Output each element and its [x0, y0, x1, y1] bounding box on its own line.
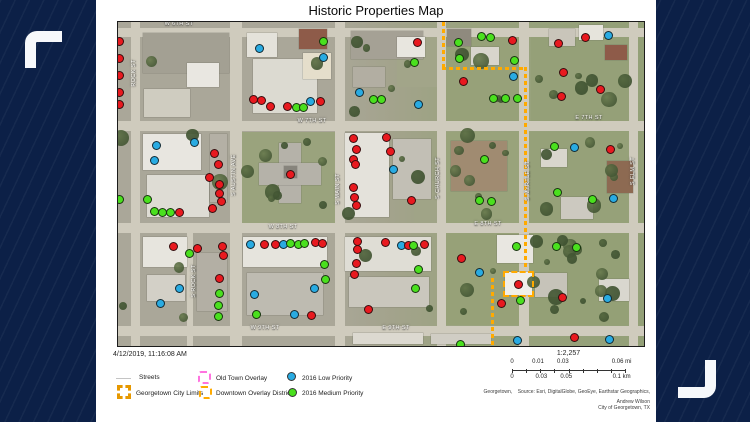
legend-label-city-limits: Georgetown City Limits: [136, 390, 203, 397]
map-timestamp: 4/12/2019, 11:16:08 AM: [113, 351, 187, 358]
property-dot-green: [300, 239, 309, 248]
street-label: S ROCK ST: [191, 261, 197, 301]
property-dot-green: [214, 312, 223, 321]
property-dot-green: [572, 243, 581, 252]
property-dot-blue: [152, 141, 161, 150]
property-dot-blue: [509, 72, 518, 81]
property-dot-green: [411, 284, 420, 293]
city-limits-symbol-icon: [117, 385, 131, 399]
scalebar-tick: [512, 369, 513, 373]
scalebar-tick: [569, 369, 570, 373]
street-label: ROCK ST: [131, 53, 137, 93]
tree-canopy: [586, 74, 598, 86]
property-dot-red: [350, 270, 359, 279]
property-dot-green: [409, 241, 418, 250]
property-dot-red: [497, 299, 506, 308]
property-dot-blue: [156, 299, 165, 308]
property-dot-red: [353, 245, 362, 254]
tree-canopy: [541, 149, 552, 160]
property-dot-green: [319, 37, 328, 46]
scalebar-tick: [526, 369, 527, 373]
property-dot-red: [208, 204, 217, 213]
tree-canopy: [460, 308, 467, 315]
property-dot-green: [510, 56, 519, 65]
street-label: E 7TH ST: [569, 115, 609, 121]
scalebar-tick-label: 0: [510, 374, 513, 380]
tree-canopy: [174, 262, 185, 273]
property-dot-blue: [250, 290, 259, 299]
property-dot-green: [489, 94, 498, 103]
tree-canopy: [450, 165, 461, 176]
corner-bracket-bottom-right-icon: [678, 360, 716, 398]
scalebar-tick-label: 0.03: [536, 374, 548, 380]
property-dot-green: [487, 197, 496, 206]
tree-canopy: [318, 157, 327, 166]
property-dot-red: [349, 183, 358, 192]
property-dot-green: [321, 275, 330, 284]
scalebar-tick-label: 0.01: [532, 359, 544, 365]
downtown-overlay-symbol-icon: [199, 386, 212, 399]
property-dot-red: [210, 149, 219, 158]
building-roof: [197, 253, 227, 311]
property-dot-green: [477, 32, 486, 41]
street-label: E 8TH ST: [468, 221, 508, 227]
scalebar-tick: [540, 369, 541, 373]
legend-label-downtown: Downtown Overlay District: [216, 390, 292, 397]
tree-canopy: [351, 36, 362, 47]
property-dot-blue: [414, 100, 423, 109]
property-dot-red: [117, 71, 124, 80]
tree-canopy: [388, 85, 395, 92]
property-dot-green: [414, 265, 423, 274]
property-dot-red: [581, 33, 590, 42]
property-dot-red: [117, 37, 124, 46]
tree-canopy: [567, 253, 577, 263]
property-dot-green: [143, 195, 152, 204]
aerial-map-image: W 6TH STROCK STW 7TH STE 7TH STS AUSTIN …: [117, 21, 645, 347]
low-priority-dot-icon: [287, 372, 296, 381]
street-label: W 9TH ST: [245, 325, 285, 331]
property-dot-blue: [310, 284, 319, 293]
tree-canopy: [259, 149, 272, 162]
property-dot-blue: [605, 335, 614, 344]
property-dot-blue: [513, 336, 522, 345]
scalebar-tick-label: 0.1 km: [613, 374, 631, 380]
tree-canopy: [530, 235, 543, 248]
building-roof: [393, 139, 431, 199]
building-roof: [605, 45, 627, 60]
attribution-sources: Georgetown, Source: Esri, DigitalGlobe, …: [484, 389, 650, 395]
property-dot-red: [215, 180, 224, 189]
tree-canopy: [426, 305, 432, 311]
overlay-boundary-segment: [442, 22, 445, 67]
property-dot-red: [386, 147, 395, 156]
street-label: E 9TH ST: [376, 325, 416, 331]
building-roof: [187, 63, 219, 87]
scalebar-tick-label: 0.05: [560, 374, 572, 380]
property-dot-red: [349, 134, 358, 143]
tree-canopy: [490, 268, 496, 274]
tree-canopy: [585, 137, 595, 147]
property-dot-green: [377, 95, 386, 104]
property-dot-red: [215, 274, 224, 283]
property-dot-red: [596, 85, 605, 94]
property-dot-red: [316, 97, 325, 106]
property-dot-red: [413, 38, 422, 47]
property-dot-red: [351, 160, 360, 169]
property-dot-green: [501, 94, 510, 103]
property-dot-green: [475, 196, 484, 205]
property-dot-red: [260, 240, 269, 249]
property-dot-green: [455, 54, 464, 63]
overlay-boundary-segment: [442, 67, 524, 70]
property-dot-green: [410, 58, 419, 67]
property-dot-green: [166, 208, 175, 217]
property-dot-green: [588, 195, 597, 204]
property-dot-red: [257, 96, 266, 105]
property-dot-red: [283, 102, 292, 111]
property-dot-green: [214, 301, 223, 310]
property-dot-blue: [475, 268, 484, 277]
property-dot-blue: [355, 88, 364, 97]
streets-line-symbol-icon: [116, 378, 131, 379]
property-dot-red: [307, 311, 316, 320]
tree-canopy: [119, 302, 127, 310]
corner-bracket-top-left-icon: [25, 31, 62, 68]
property-dot-red: [352, 145, 361, 154]
property-dot-blue: [190, 138, 199, 147]
tree-canopy: [540, 202, 553, 215]
property-dot-red: [557, 92, 566, 101]
property-dot-blue: [255, 44, 264, 53]
property-dot-red: [514, 280, 523, 289]
attribution-org: City of Georgetown, TX: [484, 405, 650, 411]
tree-canopy: [349, 106, 360, 117]
scalebar-tick-label: 0.06 mi: [612, 359, 632, 365]
property-dot-green: [215, 289, 224, 298]
map-attribution: Georgetown, Source: Esri, DigitalGlobe, …: [484, 389, 650, 411]
street-label: W 8TH ST: [263, 224, 303, 230]
tree-canopy: [363, 44, 371, 52]
property-dot-red: [214, 160, 223, 169]
legend-label-old-town: Old Town Overlay: [216, 375, 267, 382]
property-dot-blue: [246, 240, 255, 249]
property-dot-red: [554, 39, 563, 48]
property-dot-green: [553, 188, 562, 197]
property-dot-red: [193, 244, 202, 253]
property-dot-green: [512, 242, 521, 251]
property-dot-red: [286, 170, 295, 179]
tree-canopy: [599, 312, 609, 322]
page-background: Historic Properties Map W 6TH STROCK STW…: [0, 0, 750, 422]
property-dot-red: [558, 293, 567, 302]
property-dot-red: [459, 77, 468, 86]
property-dot-green: [252, 310, 261, 319]
property-dot-red: [381, 238, 390, 247]
property-dot-green: [456, 340, 465, 347]
medium-priority-dot-icon: [288, 388, 297, 397]
tree-canopy: [464, 175, 475, 186]
property-dot-blue: [150, 156, 159, 165]
property-dot-red: [352, 259, 361, 268]
scalebar-tick: [554, 369, 555, 373]
street-horizontal: [118, 223, 644, 233]
street-label: S ELM ST: [630, 151, 636, 191]
street-label: S MAIN ST: [335, 169, 341, 209]
property-dot-blue: [604, 31, 613, 40]
property-dot-red: [508, 36, 517, 45]
tree-canopy: [281, 142, 287, 148]
street-label: W 7TH ST: [292, 118, 332, 124]
property-dot-blue: [603, 294, 612, 303]
map-document-panel: Historic Properties Map W 6TH STROCK STW…: [96, 0, 656, 422]
building-roof: [144, 89, 190, 117]
property-dot-blue: [306, 97, 315, 106]
tree-canopy: [618, 74, 632, 88]
legend-label-medium-priority: 2016 Medium Priority: [302, 390, 363, 397]
property-dot-red: [559, 68, 568, 77]
map-title: Historic Properties Map: [96, 3, 656, 18]
tree-canopy: [481, 208, 492, 219]
property-dot-red: [570, 333, 579, 342]
property-dot-green: [513, 94, 522, 103]
street-label: W 6TH ST: [159, 21, 199, 27]
property-dot-red: [175, 208, 184, 217]
old-town-overlay-symbol-icon: [198, 371, 211, 384]
property-dot-green: [117, 195, 124, 204]
property-dot-green: [320, 260, 329, 269]
scalebar-tick-label: 0: [510, 359, 513, 365]
street-label: S CHURCH ST: [435, 159, 441, 199]
property-dot-green: [454, 38, 463, 47]
property-dot-blue: [175, 284, 184, 293]
property-dot-red: [364, 305, 373, 314]
legend-label-streets: Streets: [139, 374, 160, 381]
street-label: S AUSTIN AVE: [231, 156, 237, 196]
scalebar-tick: [625, 369, 626, 373]
property-dot-red: [382, 133, 391, 142]
property-dot-red: [117, 54, 124, 63]
property-dot-red: [457, 254, 466, 263]
property-dot-blue: [319, 53, 328, 62]
property-dot-green: [552, 242, 561, 251]
property-dot-red: [117, 88, 124, 97]
tree-canopy: [601, 92, 617, 108]
tree-canopy: [550, 305, 559, 314]
property-dot-green: [550, 142, 559, 151]
property-dot-red: [420, 240, 429, 249]
property-dot-red: [169, 242, 178, 251]
property-dot-red: [205, 173, 214, 182]
property-dot-green: [516, 296, 525, 305]
overlay-boundary-segment: [491, 278, 494, 345]
property-dot-blue: [570, 143, 579, 152]
scalebar-tick-label: 0.03: [557, 359, 569, 365]
scalebar-km-labels: 00.030.050.1 km: [512, 374, 633, 382]
tree-canopy: [179, 313, 188, 322]
tree-canopy: [454, 146, 463, 155]
scalebar-tick: [583, 369, 584, 373]
property-dot-red: [217, 197, 226, 206]
property-dot-red: [606, 145, 615, 154]
property-dot-red: [318, 239, 327, 248]
property-dot-blue: [389, 165, 398, 174]
property-dot-blue: [609, 194, 618, 203]
tree-canopy: [489, 142, 496, 149]
property-dot-red: [117, 100, 124, 109]
scale-ratio: 1:2,257: [512, 350, 625, 357]
scalebar-bar: [512, 370, 625, 371]
property-dot-green: [486, 33, 495, 42]
tree-canopy: [241, 165, 254, 178]
building-roof: [353, 67, 385, 87]
scalebar-miles-labels: 00.010.030.06 mi: [512, 359, 633, 367]
tree-canopy: [599, 239, 607, 247]
property-dot-green: [480, 155, 489, 164]
property-dot-red: [218, 242, 227, 251]
property-dot-red: [219, 251, 228, 260]
legend-label-low-priority: 2016 Low Priority: [302, 375, 352, 382]
building-roof: [353, 333, 423, 344]
street-label: S MYRTLE ST: [525, 161, 531, 201]
property-dot-red: [352, 201, 361, 210]
property-dot-red: [266, 102, 275, 111]
tree-canopy: [611, 250, 620, 259]
scalebar-tick: [597, 369, 598, 373]
property-dot-red: [407, 196, 416, 205]
tree-canopy: [502, 150, 509, 157]
scalebar-tick: [611, 369, 612, 373]
property-dot-blue: [290, 310, 299, 319]
tree-canopy: [117, 130, 129, 146]
